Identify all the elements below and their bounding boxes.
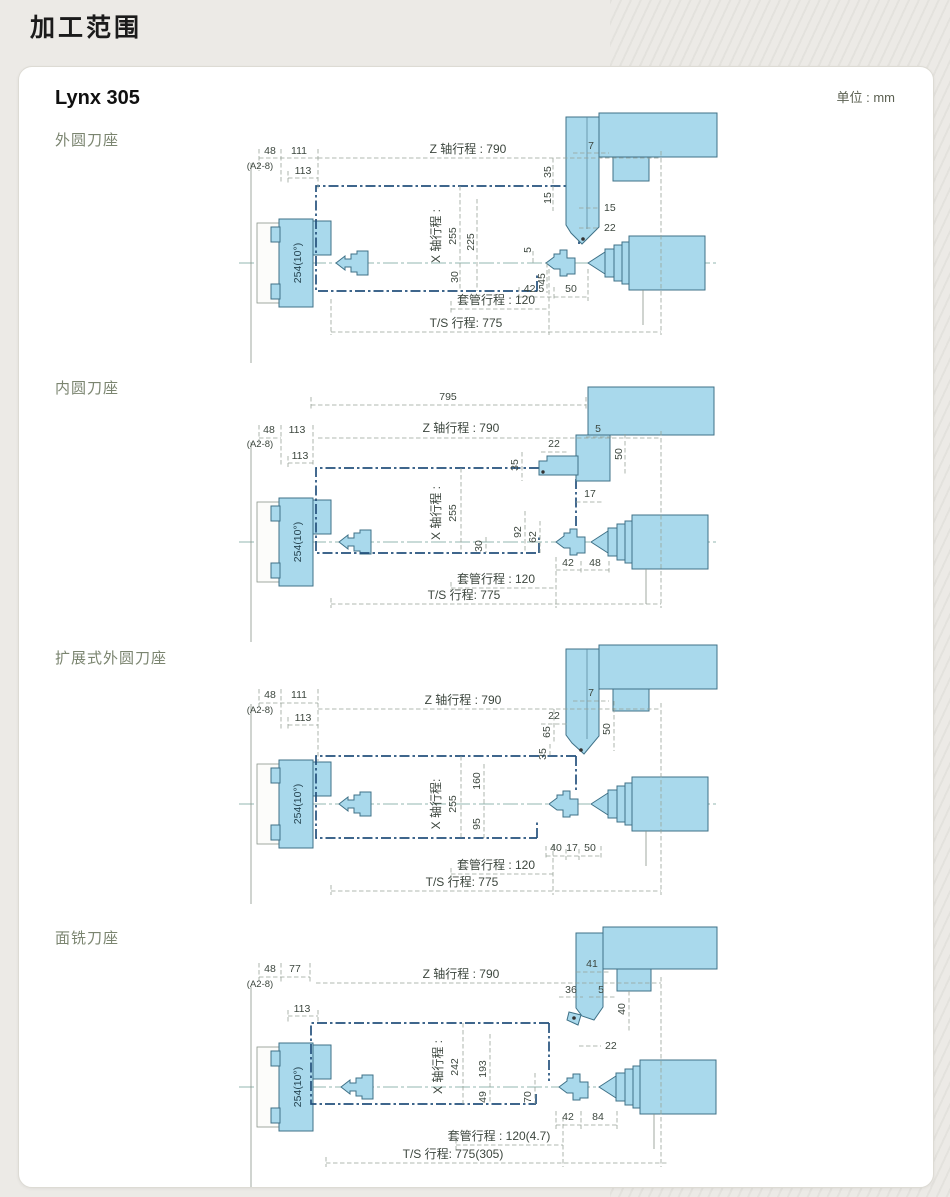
dim-label: 113 <box>289 424 306 436</box>
dim-label: (A2-8) <box>247 439 273 450</box>
dim-label: (A2-8) <box>247 705 273 716</box>
dim-label: 113 <box>292 450 309 462</box>
tailstock <box>591 777 708 866</box>
dim-label: 50 <box>613 448 625 460</box>
model-title: Lynx 305 <box>55 87 140 110</box>
turret <box>567 927 717 1025</box>
dim-label: 35 <box>509 459 521 471</box>
dim-label: 17 <box>584 488 596 500</box>
workpiece-center <box>341 1075 373 1099</box>
dim-label: 225 <box>465 233 477 251</box>
dim-x-travel: X 轴行程 : <box>428 486 443 540</box>
dim-label: 92 <box>512 526 524 538</box>
turret <box>566 113 717 244</box>
tailstock <box>599 1060 716 1149</box>
page-title: 加工范围 <box>30 8 142 44</box>
dim-label: 30 <box>473 540 485 552</box>
dim-label: 49 <box>477 1091 489 1103</box>
dim-label: 40 <box>616 1003 628 1015</box>
dim-label: 17 <box>566 842 578 854</box>
dim-label: 22 <box>604 222 616 234</box>
dim-label: 111 <box>291 689 307 701</box>
dim-label: 113 <box>294 1003 311 1015</box>
chuck-size-label: 254(10°) <box>292 522 304 562</box>
dim-z-travel: Z 轴行程 : 790 <box>430 141 507 156</box>
section-label-extended-od-holder: 扩展式外圆刀座 <box>55 647 167 668</box>
tailstock <box>591 515 708 604</box>
dim-label: 35 <box>537 748 549 760</box>
workpiece-center <box>339 530 371 554</box>
dim-label: 5 <box>595 423 601 435</box>
dim-label: 30 <box>449 271 461 283</box>
dim-label: 5 <box>598 984 604 996</box>
dim-sleeve-travel: 套管行程 : 120 <box>457 857 535 872</box>
dim-label: 7 <box>588 140 594 152</box>
dim-label: 50 <box>565 283 577 295</box>
chuck-size-label: 254(10°) <box>292 784 304 824</box>
corner-tool <box>556 529 585 555</box>
dim-label: 255 <box>447 227 459 245</box>
dim-label: 48 <box>264 689 276 701</box>
dim-sleeve-travel: 套管行程 : 120 <box>457 292 535 307</box>
dim-x-travel: X 轴行程: <box>428 779 443 830</box>
dim-label: (A2-8) <box>247 979 273 990</box>
dim-z-travel: Z 轴行程 : 790 <box>423 966 500 981</box>
diagram-od-holder: 254(10°) <box>231 111 721 373</box>
dim-x-travel: X 轴行程 : <box>428 209 443 263</box>
dim-label: 95 <box>471 818 483 830</box>
workpiece-center <box>339 792 371 816</box>
dim-label: 255 <box>447 795 459 813</box>
dim-ts-travel: T/S 行程: 775 <box>430 315 503 330</box>
dim-label: 70 <box>522 1091 534 1103</box>
dim-label: 42 <box>562 1111 574 1123</box>
dim-label: 48 <box>589 557 601 569</box>
tool-insert <box>581 237 585 241</box>
dim-label: 111 <box>291 145 307 157</box>
dim-label: 77 <box>289 963 301 975</box>
chuck-size-label: 254(10°) <box>292 1067 304 1107</box>
dim-x-travel: X 轴行程 : <box>430 1040 445 1094</box>
dim-label: 48 <box>264 963 276 975</box>
dim-sleeve-travel: 套管行程 : 120(4.7) <box>448 1128 551 1143</box>
dim-label: 50 <box>601 723 613 735</box>
section-label-od-holder: 外圆刀座 <box>55 129 119 150</box>
chuck-size-label: 254(10°) <box>292 243 304 283</box>
dim-ts-travel: T/S 行程: 775(305) <box>403 1146 504 1161</box>
tool-insert <box>579 748 583 752</box>
dim-label: (A2-8) <box>247 161 273 172</box>
dim-label: 42 <box>562 557 574 569</box>
diagram-id-holder: 254(10°) <box>231 361 721 631</box>
dim-label: 7 <box>588 687 594 699</box>
dim-label: 22 <box>605 1040 617 1052</box>
unit-label: 单位 : mm <box>837 87 896 106</box>
dim-label: 255 <box>447 504 459 522</box>
section-label-face-mill-holder: 面铣刀座 <box>55 927 119 948</box>
dim-label: 795 <box>439 391 457 403</box>
dim-label: 48 <box>264 145 276 157</box>
dim-label: 84 <box>592 1111 604 1123</box>
corner-tool <box>549 791 578 817</box>
dim-label: 113 <box>295 712 312 724</box>
dim-label: 193 <box>477 1060 489 1078</box>
dim-label: 41 <box>586 958 598 970</box>
dim-label: 65 <box>541 726 553 738</box>
tool-insert <box>572 1016 576 1020</box>
dim-label: 35 <box>542 166 554 178</box>
dim-label: 22 <box>548 710 560 722</box>
dim-label: 5 <box>522 247 534 253</box>
diagram-extended-od-holder: 254(10°) <box>231 641 721 909</box>
diagram-face-mill-holder: 254(10°) <box>231 921 721 1189</box>
turret <box>566 645 717 754</box>
section-label-id-holder: 内圆刀座 <box>55 377 119 398</box>
dim-label: 50 <box>584 842 596 854</box>
corner-tool <box>559 1074 588 1100</box>
dim-label: 113 <box>295 165 312 177</box>
content-card: Lynx 305 单位 : mm 外圆刀座 内圆刀座 扩展式外圆刀座 面铣刀座 … <box>18 66 934 1188</box>
dim-label: 242 <box>449 1058 461 1076</box>
dim-z-travel: Z 轴行程 : 790 <box>425 692 502 707</box>
dim-label: 15 <box>542 192 554 204</box>
dim-ts-travel: T/S 行程: 775 <box>428 587 501 602</box>
dim-label: 22 <box>548 438 560 450</box>
turret <box>539 387 714 481</box>
dim-z-travel: Z 轴行程 : 790 <box>423 420 500 435</box>
tool-insert <box>541 470 544 473</box>
workpiece-center <box>336 251 368 275</box>
dim-label: 40 <box>550 842 562 854</box>
tailstock <box>588 236 705 325</box>
dim-label: 15 <box>604 202 616 214</box>
dim-label: 48 <box>263 424 275 436</box>
dim-sleeve-travel: 套管行程 : 120 <box>457 571 535 586</box>
dim-label: 36 <box>565 984 577 996</box>
corner-tool <box>546 250 575 276</box>
dim-label: 62 <box>527 531 539 543</box>
dim-ts-travel: T/S 行程: 775 <box>426 874 499 889</box>
dim-label: 160 <box>471 772 483 790</box>
